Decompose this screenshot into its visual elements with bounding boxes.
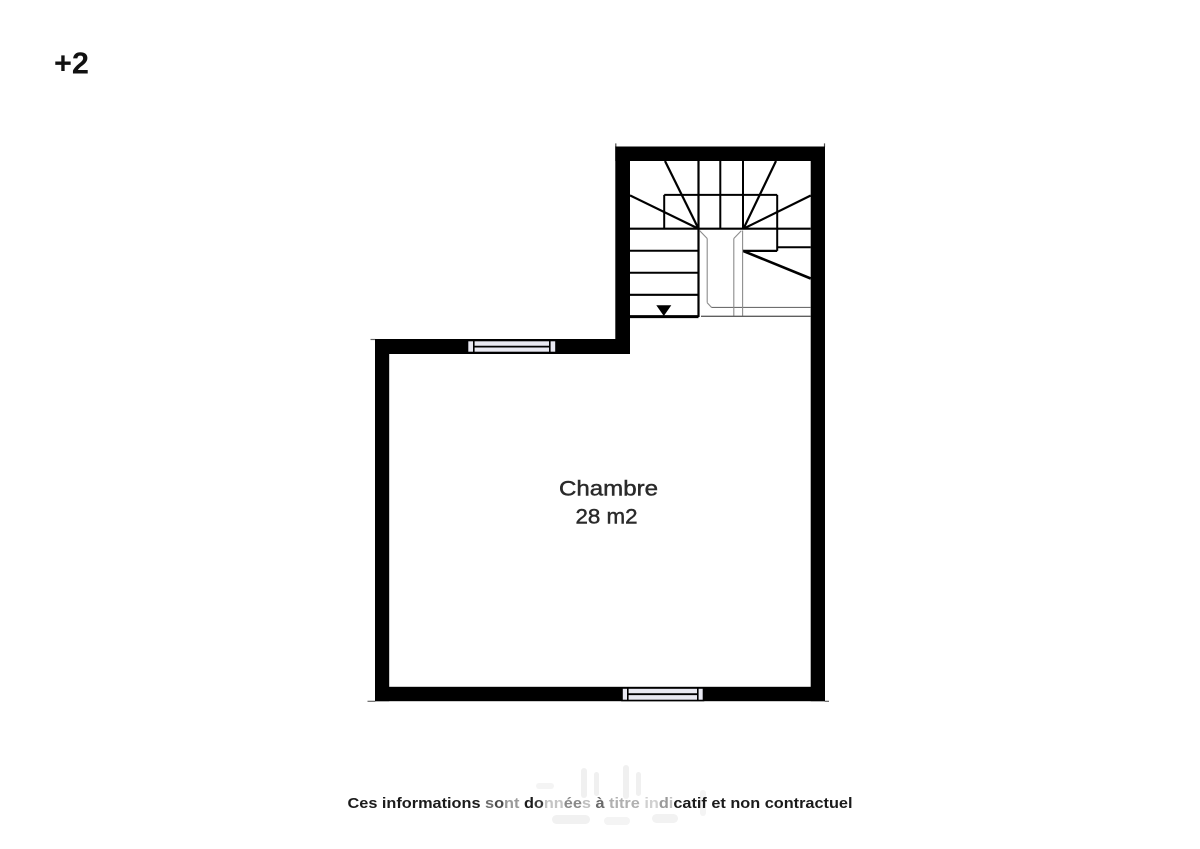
svg-text:Ces informations sont données: Ces informations sont données à titre in… bbox=[348, 795, 853, 812]
svg-text:28 m2: 28 m2 bbox=[576, 505, 638, 529]
svg-text:+2: +2 bbox=[54, 46, 89, 81]
svg-text:Chambre: Chambre bbox=[559, 477, 658, 501]
